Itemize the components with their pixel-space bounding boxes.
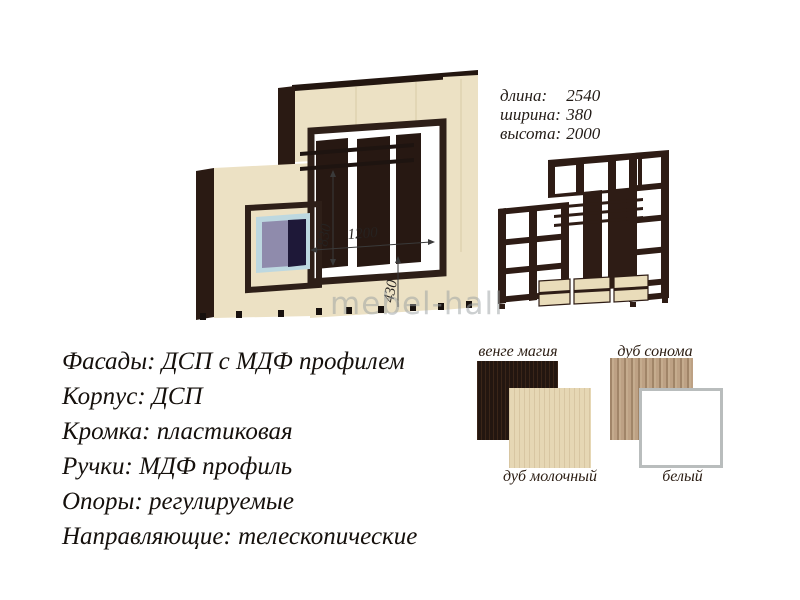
swatch-bely <box>639 388 723 468</box>
size-specs: длина: 2540 ширина: 380 высота: 2000 <box>500 86 600 143</box>
size-spec-row: высота: 2000 <box>500 124 600 143</box>
swatch-label-dub-molochny: дуб молочный <box>494 468 606 486</box>
tower-post <box>661 152 669 298</box>
foot <box>662 298 668 303</box>
size-value: 380 <box>566 105 592 124</box>
front-view-render: 830 1200 430 <box>180 55 500 325</box>
materials-line: Ручки: МДФ профиль <box>62 449 502 484</box>
size-label: ширина: <box>500 105 562 124</box>
bridge-opening <box>555 165 576 194</box>
materials-list: Фасады: ДСП с МДФ профилем Корпус: ДСП К… <box>62 344 502 554</box>
materials-line: Кромка: пластиковая <box>62 414 502 449</box>
size-value: 2540 <box>566 86 600 105</box>
size-spec-row: длина: 2540 <box>500 86 600 105</box>
materials-line: Фасады: ДСП с МДФ профилем <box>62 344 502 379</box>
swatch-dub-molochny <box>509 388 591 468</box>
size-label: длина: <box>500 86 562 105</box>
panel <box>357 136 390 267</box>
materials-line: Опоры: регулируемые <box>62 484 502 519</box>
bridge-opening <box>642 157 662 187</box>
dim-label-1200: 1200 <box>347 225 379 243</box>
swatch-label-venge-magia: венге магия <box>470 343 566 361</box>
size-label: высота: <box>500 124 562 143</box>
swatch-label-bely: белый <box>640 468 725 486</box>
foot <box>630 302 636 307</box>
tv-screen-dark-strip <box>288 219 306 267</box>
materials-line: Направляющие: телескопические <box>62 519 502 554</box>
materials-line: Корпус: ДСП <box>62 379 502 414</box>
lower-cabinet-left-cap <box>196 168 214 320</box>
bridge-opening <box>584 162 608 192</box>
size-spec-row: ширина: 380 <box>500 105 600 124</box>
shelf-unit-post <box>529 210 537 301</box>
carcass-render <box>490 148 720 318</box>
top-cabinet-left-cap <box>278 86 295 175</box>
watermark: mebel-hall <box>330 286 504 322</box>
size-value: 2000 <box>566 124 600 143</box>
